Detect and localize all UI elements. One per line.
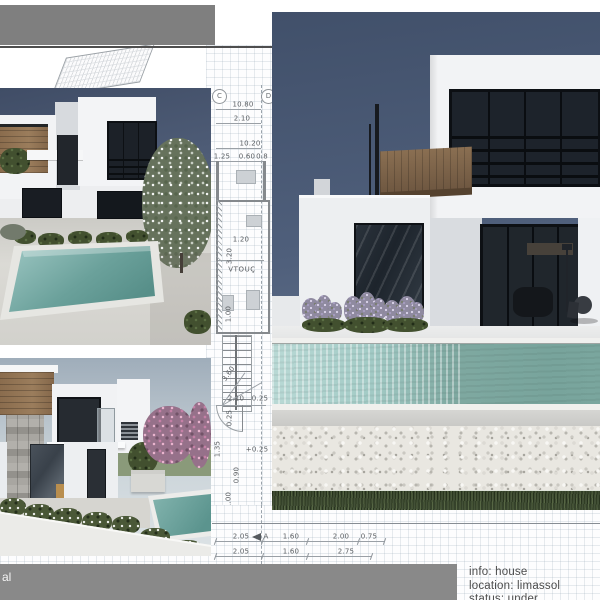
ground-window: [22, 188, 62, 218]
rooftop-unit: [314, 179, 330, 196]
plan-fixture: [246, 290, 260, 310]
hedge: [0, 148, 30, 174]
dim-line: [215, 556, 372, 557]
chimney-pipe: [369, 124, 371, 198]
heater-lamp-head: [562, 244, 572, 250]
info-line: info: house: [469, 566, 600, 580]
pool-edge-wall: [272, 410, 600, 427]
dim-label: 2.00: [333, 534, 349, 541]
dim-label: 2.75: [338, 549, 354, 556]
dim-tick: [383, 538, 386, 545]
lower-window: [87, 449, 106, 503]
dim-label: +0.25: [246, 447, 268, 454]
dim-label: 0.60: [239, 154, 255, 161]
chimney-pipe: [375, 104, 379, 198]
lavender-base: [302, 318, 346, 332]
dim-tick: [370, 553, 373, 560]
plan-fixture: [246, 215, 262, 227]
dim-label: 0.8: [256, 154, 268, 161]
dim-label: 1.25: [214, 154, 230, 161]
dim-label: 2.10: [228, 396, 244, 403]
plan-fixture: [236, 170, 256, 184]
render-bottom-left: [0, 358, 211, 556]
louver-window: [121, 422, 138, 440]
footer-bar-text: al: [2, 570, 11, 584]
balcony-rail-bar: [109, 159, 155, 161]
project-info-block: info: house location: limassol status: u…: [469, 566, 600, 600]
render-main: [272, 12, 600, 510]
pink-blossom-tree: [188, 402, 211, 468]
bush: [184, 310, 211, 334]
interior-furniture: [513, 287, 553, 317]
presentation-sheet: C D 10.80 2.10 10.20 1.25 0.60 0.8 1.20 …: [0, 0, 600, 600]
furniture-shadow: [570, 318, 598, 324]
dim-label: 1.60: [283, 549, 299, 556]
low-garden-wall: [272, 296, 300, 330]
dim-line: [206, 161, 266, 162]
dim-label: 1.60: [283, 534, 299, 541]
recessed-wall: [430, 218, 482, 330]
dim-label: 10.80: [232, 102, 253, 109]
wood-cladding: [0, 372, 54, 415]
white-fence: [0, 442, 7, 506]
dim-label: 0.90: [234, 467, 241, 483]
status-line: status: under construction: [469, 593, 600, 600]
ground-window: [97, 191, 146, 219]
grid-marker-c: C: [212, 89, 227, 104]
dim-label: 2.10: [234, 116, 250, 123]
window-mullion: [138, 123, 139, 178]
pebble-bed: [272, 426, 600, 490]
dim-line: [216, 148, 261, 149]
dim-line: [216, 109, 261, 110]
dim-label: 0.25: [227, 410, 234, 426]
plan-door-leaf: [242, 405, 243, 431]
location-line: location: limassol: [469, 580, 600, 594]
header-bar: [0, 5, 215, 45]
room-label: VTOUÇ: [228, 267, 256, 274]
glass-balustrade: [97, 408, 115, 443]
section-marker: A: [264, 534, 269, 541]
footer-bar: al: [0, 564, 457, 600]
dim-label: 2.05: [233, 549, 249, 556]
section-arrow-icon: [252, 533, 261, 541]
pool: [0, 238, 170, 323]
upper-side-window: [57, 135, 78, 185]
blueprint-strip: C D 10.80 2.10 10.20 1.25 0.60 0.8 1.20 …: [206, 45, 272, 565]
blueprint-heavy-line: [212, 523, 600, 524]
dim-label: 3.20: [227, 248, 234, 264]
dim-line: [216, 123, 261, 124]
dim-label: 10.20: [239, 141, 260, 148]
upper-window: [57, 397, 101, 445]
plan-wall: [263, 161, 266, 201]
balcony-rail-bar: [452, 175, 598, 178]
heater-lamp: [566, 250, 568, 312]
dim-label: 2.05: [233, 534, 249, 541]
dim-label: 0.75: [361, 534, 377, 541]
lavender-base: [384, 318, 428, 332]
pool-ripples: [272, 344, 600, 404]
balcony-rail-bar: [452, 136, 598, 139]
balcony-rail-bar: [452, 149, 598, 152]
dim-label: 1.35: [215, 441, 222, 457]
window-mullion: [123, 123, 124, 178]
grass-strip: [272, 490, 600, 510]
interior-light: [56, 484, 64, 498]
dim-line: [215, 541, 385, 542]
dim-label: 0.25: [252, 396, 268, 403]
balcony-rail-bar: [452, 162, 598, 165]
door-mullion: [507, 227, 509, 333]
dim-label: 1.00: [226, 306, 233, 322]
header-rule: [0, 46, 272, 48]
render-top-left: [0, 88, 211, 345]
sliding-glass-doors: [480, 224, 584, 336]
plan-wall: [216, 161, 219, 201]
dim-label: 1.20: [233, 237, 249, 244]
